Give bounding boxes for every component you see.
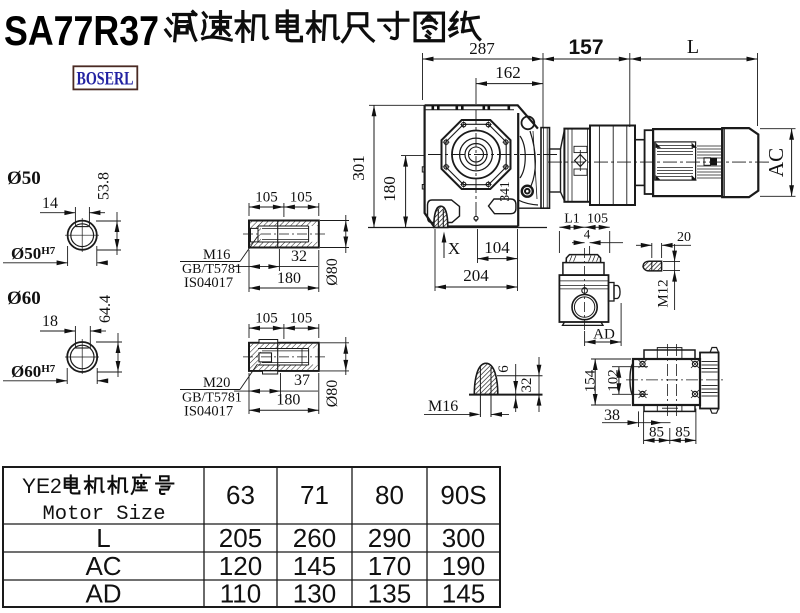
svg-text:90S: 90S	[440, 480, 486, 510]
svg-text:301: 301	[349, 155, 368, 181]
svg-text:Ø80: Ø80	[324, 380, 341, 408]
svg-text:300: 300	[442, 523, 485, 553]
svg-text:105: 105	[255, 311, 278, 327]
svg-text:Ø50: Ø50	[7, 168, 41, 189]
svg-text:53.8: 53.8	[96, 172, 113, 200]
svg-text:105: 105	[290, 190, 313, 206]
svg-text:AD: AD	[593, 327, 615, 343]
svg-text:Ø60: Ø60	[7, 288, 41, 309]
svg-text:341: 341	[497, 181, 512, 201]
svg-text:M16: M16	[428, 398, 458, 415]
svg-text:162: 162	[495, 63, 521, 82]
svg-text:BOSERL: BOSERL	[77, 69, 134, 90]
svg-text:105: 105	[255, 190, 278, 206]
svg-text:204: 204	[463, 266, 489, 285]
svg-text:135: 135	[368, 579, 411, 609]
svg-text:L: L	[687, 36, 699, 58]
svg-text:SA77R37: SA77R37	[4, 7, 159, 54]
svg-text:37: 37	[294, 372, 310, 389]
svg-text:290: 290	[368, 523, 411, 553]
svg-text:80: 80	[375, 480, 404, 510]
svg-text:104: 104	[484, 238, 510, 257]
svg-text:Ø80: Ø80	[324, 258, 341, 286]
svg-text:190: 190	[442, 551, 485, 581]
svg-text:32: 32	[291, 248, 307, 265]
svg-text:85: 85	[675, 425, 690, 441]
svg-text:M16: M16	[203, 247, 230, 263]
svg-text:180: 180	[380, 176, 399, 202]
svg-text:18: 18	[42, 313, 58, 330]
svg-text:L1: L1	[564, 212, 580, 227]
svg-text:20: 20	[677, 230, 691, 245]
svg-text:63: 63	[226, 480, 255, 510]
svg-text:145: 145	[293, 551, 336, 581]
svg-text:AD: AD	[85, 579, 121, 609]
svg-text:X: X	[448, 239, 460, 258]
svg-text:180: 180	[276, 392, 300, 409]
svg-text:260: 260	[293, 523, 336, 553]
svg-text:180: 180	[277, 270, 301, 287]
svg-text:130: 130	[293, 579, 336, 609]
svg-text:IS04017: IS04017	[184, 275, 233, 291]
svg-text:105: 105	[587, 212, 608, 227]
svg-text:M20: M20	[203, 375, 230, 391]
svg-text:L: L	[96, 523, 110, 553]
svg-text:14: 14	[42, 195, 58, 212]
svg-text:145: 145	[442, 579, 485, 609]
svg-text:110: 110	[220, 579, 261, 609]
svg-text:170: 170	[368, 551, 411, 581]
svg-text:38: 38	[604, 407, 620, 424]
svg-text:6: 6	[496, 365, 512, 373]
svg-text:102: 102	[606, 369, 622, 392]
svg-text:4: 4	[584, 227, 591, 242]
svg-text:71: 71	[300, 480, 329, 510]
svg-text:85: 85	[649, 425, 664, 441]
svg-text:205: 205	[219, 523, 262, 553]
svg-text:AC: AC	[85, 551, 121, 581]
svg-text:M12: M12	[656, 279, 672, 307]
svg-text:154: 154	[583, 369, 599, 392]
svg-text:105: 105	[290, 311, 313, 327]
svg-text:287: 287	[469, 39, 495, 58]
svg-text:120: 120	[219, 551, 262, 581]
svg-text:IS04017: IS04017	[184, 404, 233, 420]
svg-text:157: 157	[568, 36, 603, 59]
svg-text:AC: AC	[764, 148, 788, 177]
svg-text:64.4: 64.4	[97, 295, 114, 323]
svg-text:32: 32	[519, 378, 535, 393]
svg-text:YE2: YE2	[22, 475, 62, 498]
